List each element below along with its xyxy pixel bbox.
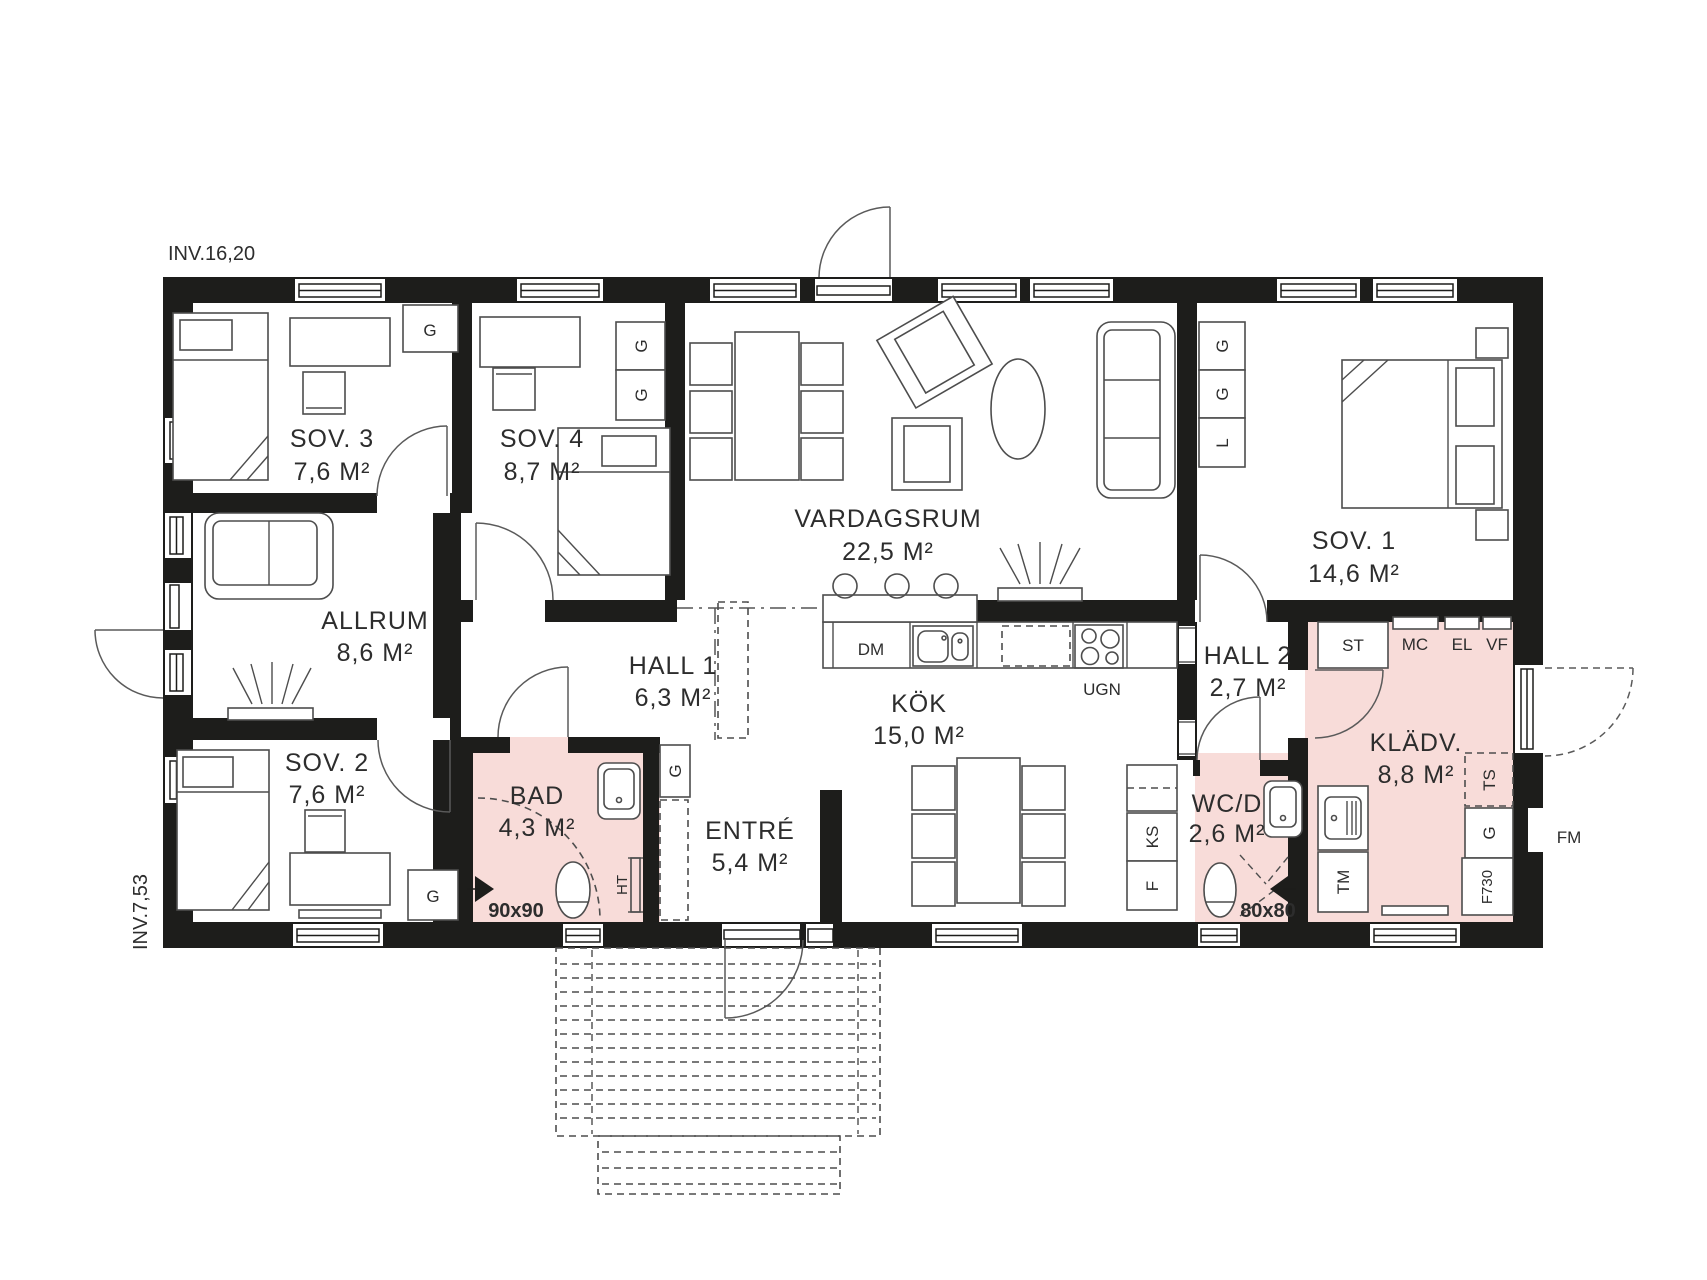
label-tm: TM bbox=[1334, 870, 1353, 895]
label-ts: TS bbox=[1480, 769, 1499, 791]
label-ht: HT bbox=[614, 875, 631, 895]
label-g1-sov4: G bbox=[632, 339, 651, 352]
window-vardagsrum-3 bbox=[1030, 279, 1113, 301]
room-area-sov2: 7,6 M² bbox=[289, 781, 366, 809]
dining-table-kok bbox=[912, 758, 1065, 906]
inv-left-label: INV.7,53 bbox=[130, 874, 152, 950]
label-g-sov3: G bbox=[423, 321, 436, 340]
label-g-sov2: G bbox=[426, 887, 439, 906]
label-g1-sov1: G bbox=[1213, 339, 1232, 352]
room-area-allrum: 8,6 M² bbox=[337, 639, 414, 667]
room-name-entre: ENTRÉ bbox=[705, 816, 795, 845]
room-name-hall2: HALL 2 bbox=[1204, 642, 1292, 670]
dining-table-vardagsrum bbox=[690, 332, 843, 480]
armchair-2 bbox=[892, 418, 962, 490]
label-f730: F730 bbox=[1479, 870, 1496, 904]
sofa-vardagsrum bbox=[1097, 322, 1175, 498]
laundry-sink bbox=[1318, 786, 1368, 850]
bed-sov1 bbox=[1342, 360, 1502, 508]
desk-sov4 bbox=[480, 317, 580, 367]
window-bad bbox=[563, 924, 603, 946]
window-sov4 bbox=[517, 279, 603, 301]
chair-sov2 bbox=[305, 810, 345, 852]
room-name-sov2: SOV. 2 bbox=[285, 749, 369, 777]
room-name-vardagsrum: VARDAGSRUM bbox=[794, 505, 981, 533]
window-kok-bottom bbox=[932, 924, 1022, 946]
room-name-sov3: SOV. 3 bbox=[290, 425, 374, 453]
toilet-wcd bbox=[1204, 863, 1236, 917]
room-name-sov4: SOV. 4 bbox=[500, 425, 584, 453]
label-g2-sov4: G bbox=[632, 388, 651, 401]
room-name-bad: BAD bbox=[510, 782, 564, 810]
bed-sov2 bbox=[177, 750, 269, 910]
label-shower-bad: 90x90 bbox=[488, 900, 544, 922]
window-sov1-1 bbox=[1277, 279, 1360, 301]
nightstand-sov1-bottom bbox=[1476, 510, 1508, 540]
window-allrum-2 bbox=[165, 650, 191, 695]
room-area-sov1: 14,6 M² bbox=[1308, 560, 1400, 588]
window-sov3 bbox=[295, 279, 385, 301]
room-area-bad: 4,3 M² bbox=[499, 814, 576, 842]
label-mc: MC bbox=[1402, 635, 1428, 654]
unit-mc bbox=[1393, 617, 1438, 629]
label-st: ST bbox=[1342, 636, 1364, 655]
room-name-kok: KÖK bbox=[891, 690, 947, 718]
porch-deck bbox=[556, 948, 880, 1194]
window-kladv-bottom bbox=[1370, 924, 1460, 946]
label-el: EL bbox=[1452, 635, 1473, 654]
room-area-sov4: 8,7 M² bbox=[504, 458, 581, 486]
window-vardagsrum-1 bbox=[710, 279, 800, 301]
room-area-sov3: 7,6 M² bbox=[294, 458, 371, 486]
label-fm: FM bbox=[1557, 828, 1582, 847]
room-area-entre: 5,4 M² bbox=[712, 849, 789, 877]
label-ugn: UGN bbox=[1083, 680, 1121, 699]
fm-niche bbox=[1528, 808, 1543, 852]
room-name-kladv: KLÄDV. bbox=[1370, 729, 1463, 757]
bed-sov3 bbox=[173, 313, 268, 480]
sofa-allrum bbox=[205, 513, 333, 599]
window-wcd-bottom bbox=[1198, 924, 1240, 946]
sink-wcd bbox=[1264, 781, 1302, 837]
room-area-hall2: 2,7 M² bbox=[1210, 674, 1287, 702]
nightstand-sov1-top bbox=[1476, 328, 1508, 358]
label-g2-sov1: G bbox=[1213, 387, 1232, 400]
label-l-sov1: L bbox=[1213, 438, 1232, 447]
sink-bad bbox=[598, 763, 640, 819]
room-area-vardagsrum: 22,5 M² bbox=[842, 538, 934, 566]
room-area-hall1: 6,3 M² bbox=[635, 684, 712, 712]
label-f: F bbox=[1143, 881, 1162, 891]
unit-el bbox=[1445, 617, 1479, 629]
unit-vf bbox=[1483, 617, 1511, 629]
toilet-bad bbox=[556, 862, 590, 918]
room-area-wcd: 2,6 M² bbox=[1189, 820, 1266, 848]
room-area-kok: 15,0 M² bbox=[873, 722, 965, 750]
label-g-hall: G bbox=[666, 764, 685, 777]
label-shower-wcd: 80x80 bbox=[1240, 900, 1296, 922]
chair-sov3 bbox=[303, 372, 345, 414]
window-sov1-2 bbox=[1373, 279, 1457, 301]
kladv-exterior-opening bbox=[1515, 665, 1633, 756]
label-g-kladv: G bbox=[1480, 826, 1499, 839]
entrance-door bbox=[722, 922, 833, 1018]
label-ks: KS bbox=[1143, 826, 1162, 849]
room-area-kladv: 8,8 M² bbox=[1378, 761, 1455, 789]
room-name-wcd: WC/D bbox=[1192, 790, 1263, 818]
room-name-hall1: HALL 1 bbox=[629, 652, 717, 680]
bench-kladv bbox=[1382, 906, 1448, 915]
label-dm: DM bbox=[858, 640, 884, 659]
floorplan-page: INV.16,20 INV.7,53 SOV. 3 7,6 M² SOV. 4 … bbox=[0, 0, 1707, 1280]
floorplan-drawing: INV.16,20 INV.7,53 SOV. 3 7,6 M² SOV. 4 … bbox=[0, 0, 1707, 1280]
window-sov2-bottom bbox=[293, 924, 383, 946]
patio-door bbox=[815, 207, 892, 301]
label-vf: VF bbox=[1486, 635, 1508, 654]
desk-sov3 bbox=[290, 318, 390, 366]
chair-sov4 bbox=[493, 368, 535, 410]
room-name-allrum: ALLRUM bbox=[321, 607, 428, 635]
room-name-sov1: SOV. 1 bbox=[1312, 527, 1396, 555]
window-allrum-1 bbox=[165, 513, 191, 558]
inv-top-label: INV.16,20 bbox=[168, 243, 255, 265]
